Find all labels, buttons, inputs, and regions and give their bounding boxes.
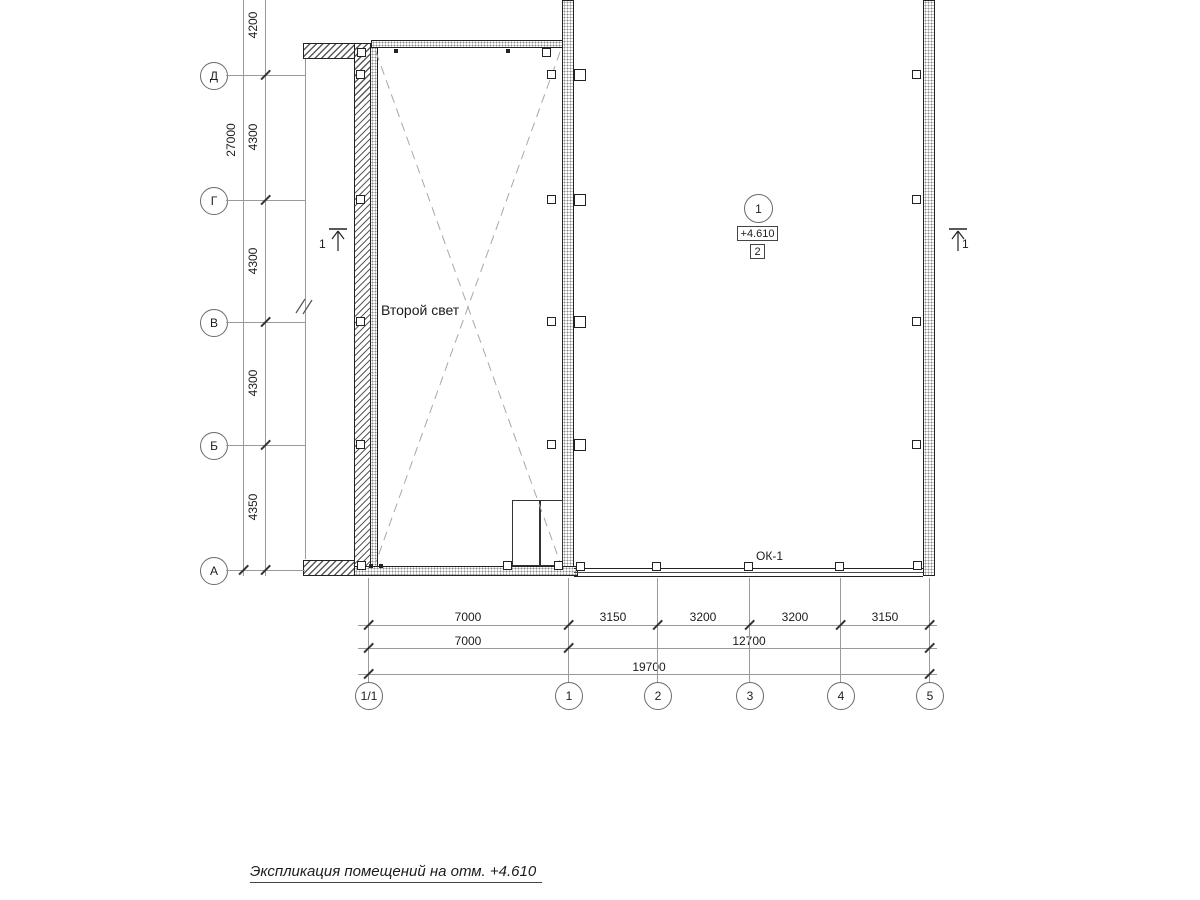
elevation-box: +4.610 <box>737 226 778 241</box>
dim-left-seg-1: 4300 <box>246 124 260 151</box>
axis-line-vertical <box>749 578 750 682</box>
column-marker <box>357 48 366 57</box>
anchor-dot <box>379 564 383 568</box>
column-marker <box>912 317 921 326</box>
plan-title-text: Экспликация помещений на отм. +4.610 <box>250 863 542 883</box>
plan-title: Экспликация помещений на отм. +4.610 <box>250 863 542 880</box>
column-marker <box>913 561 922 570</box>
axis-bubble-b: Б <box>200 432 228 460</box>
section-marker-icon-left <box>326 226 350 252</box>
dim-line-overall-left <box>243 0 244 576</box>
room-number-bubble: 1 <box>744 194 773 223</box>
axis-bubble-3: 3 <box>736 682 764 710</box>
dim-left-seg-0: 4200 <box>246 12 260 39</box>
column-marker <box>912 70 921 79</box>
dim-line-segments-left <box>265 0 266 576</box>
column-marker-large <box>574 194 586 206</box>
column-marker <box>503 561 512 570</box>
section-label-left: 1 <box>319 237 326 251</box>
dim-row1-2: 3200 <box>663 610 743 624</box>
column-marker <box>356 440 365 449</box>
column-marker <box>547 317 556 326</box>
column-marker <box>652 562 661 571</box>
column-marker-large <box>574 439 586 451</box>
anchor-dot <box>369 564 373 568</box>
column-marker <box>744 562 753 571</box>
dim-row1-1: 3150 <box>573 610 653 624</box>
column-marker-large <box>574 69 586 81</box>
anchor-dot <box>394 49 398 53</box>
dim-chain-line <box>358 648 937 649</box>
column-marker <box>357 561 366 570</box>
dim-left-seg-3: 4300 <box>246 370 260 397</box>
dim-row1-0: 7000 <box>428 610 508 624</box>
axis-line-vertical <box>657 578 658 682</box>
column-marker <box>356 70 365 79</box>
window-mark-label: ОК-1 <box>756 549 783 563</box>
dim-row1-4: 3150 <box>845 610 925 624</box>
column-marker-large <box>574 316 586 328</box>
wall-stub-bottom-left <box>303 560 355 576</box>
axis-line-vertical <box>840 578 841 682</box>
axis-line-vertical <box>929 578 930 682</box>
dim-left-seg-2: 4300 <box>246 248 260 275</box>
section-label-right: 1 <box>962 237 969 251</box>
axis-bubble-d: Д <box>200 62 228 90</box>
second-light-label: Второй свет <box>381 302 459 318</box>
column-marker <box>542 48 551 57</box>
dim-left-overall: 27000 <box>224 123 238 156</box>
axis-bubble-4: 4 <box>827 682 855 710</box>
axis-bubble-5: 5 <box>916 682 944 710</box>
axis-bubble-g: Г <box>200 187 228 215</box>
dim-left-seg-4: 4350 <box>246 494 260 521</box>
dim-chain-line <box>358 674 937 675</box>
wall-axis-5 <box>923 0 935 576</box>
column-marker <box>576 562 585 571</box>
axis-bubble-1: 1 <box>555 682 583 710</box>
wall-top <box>371 40 563 48</box>
column-marker <box>356 195 365 204</box>
column-marker <box>912 195 921 204</box>
dim-row3-0: 19700 <box>609 660 689 674</box>
axis-bubble-a: А <box>200 557 228 585</box>
anchor-dot <box>506 49 510 53</box>
dim-chain-line <box>358 625 937 626</box>
dim-row1-3: 3200 <box>755 610 835 624</box>
column-marker <box>554 561 563 570</box>
column-marker <box>547 70 556 79</box>
floor-plan-drawing: 1 1 1 +4.610 2 Второй свет ОК-1 Д Г В Б … <box>0 0 1200 900</box>
column-marker <box>547 195 556 204</box>
axis-line-vertical <box>368 578 369 682</box>
column-marker <box>835 562 844 571</box>
room-ref-box: 2 <box>750 244 765 259</box>
axis-bubble-v: В <box>200 309 228 337</box>
column-marker <box>356 317 365 326</box>
dim-row2-0: 7000 <box>428 634 508 648</box>
axis-line-vertical <box>568 578 569 682</box>
column-marker <box>912 440 921 449</box>
axis-bubble-1-1: 1/1 <box>355 682 383 710</box>
wall-stub-top-left <box>303 43 355 59</box>
wall-left <box>354 43 371 576</box>
column-marker <box>547 440 556 449</box>
break-icon <box>294 296 316 316</box>
axis-bubble-2: 2 <box>644 682 672 710</box>
